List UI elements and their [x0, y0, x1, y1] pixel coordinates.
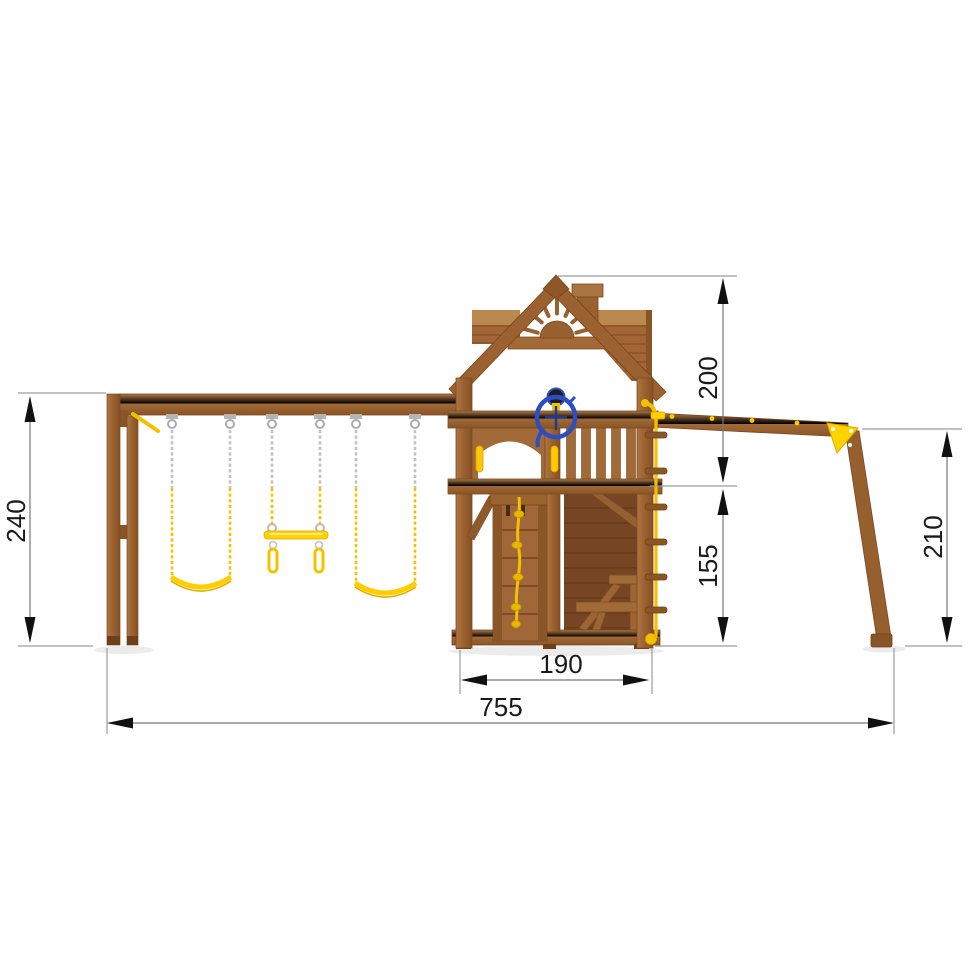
dim-label-240: 240 — [1, 499, 31, 542]
trapeze-ring — [315, 549, 323, 572]
rope-end-knob — [646, 634, 657, 645]
swing-hangers — [166, 414, 421, 428]
trapeze-ring — [269, 549, 277, 572]
dim-label-200: 200 — [693, 356, 723, 399]
right-brace — [652, 413, 892, 647]
climbing-board — [490, 493, 549, 641]
swings — [166, 414, 421, 597]
door-post — [547, 490, 560, 632]
trapeze-bar — [264, 531, 328, 539]
post-foot — [107, 636, 120, 645]
brace-beam — [652, 413, 848, 437]
swing-post-rear — [127, 416, 138, 645]
swing-frame — [107, 394, 458, 645]
swing-beam — [119, 394, 458, 415]
balcony-rail — [448, 411, 658, 428]
hand-grip — [551, 446, 558, 472]
technical-drawing-page: 240 755 190 200 155 210 — [0, 0, 970, 970]
dim-label-755: 755 — [479, 692, 522, 722]
balcony-balusters — [567, 428, 636, 480]
playground-elevation-drawing: 240 755 190 200 155 210 — [0, 0, 970, 970]
hand-grip — [476, 446, 483, 472]
trapeze — [264, 430, 328, 572]
dim-label-210: 210 — [918, 515, 948, 558]
swing-post-front — [107, 394, 120, 645]
brace-foot — [871, 634, 892, 647]
dim-label-155: 155 — [693, 544, 723, 587]
brace-leg — [845, 429, 891, 640]
dimensions: 240 755 190 200 155 210 — [1, 276, 962, 734]
tower — [448, 275, 667, 649]
ground-shadows — [94, 646, 906, 657]
post-foot — [127, 636, 138, 645]
dim-label-190: 190 — [539, 649, 582, 679]
belt-swing-2 — [355, 430, 416, 597]
belt-swing-1 — [171, 430, 231, 591]
deck-beam — [448, 479, 662, 494]
